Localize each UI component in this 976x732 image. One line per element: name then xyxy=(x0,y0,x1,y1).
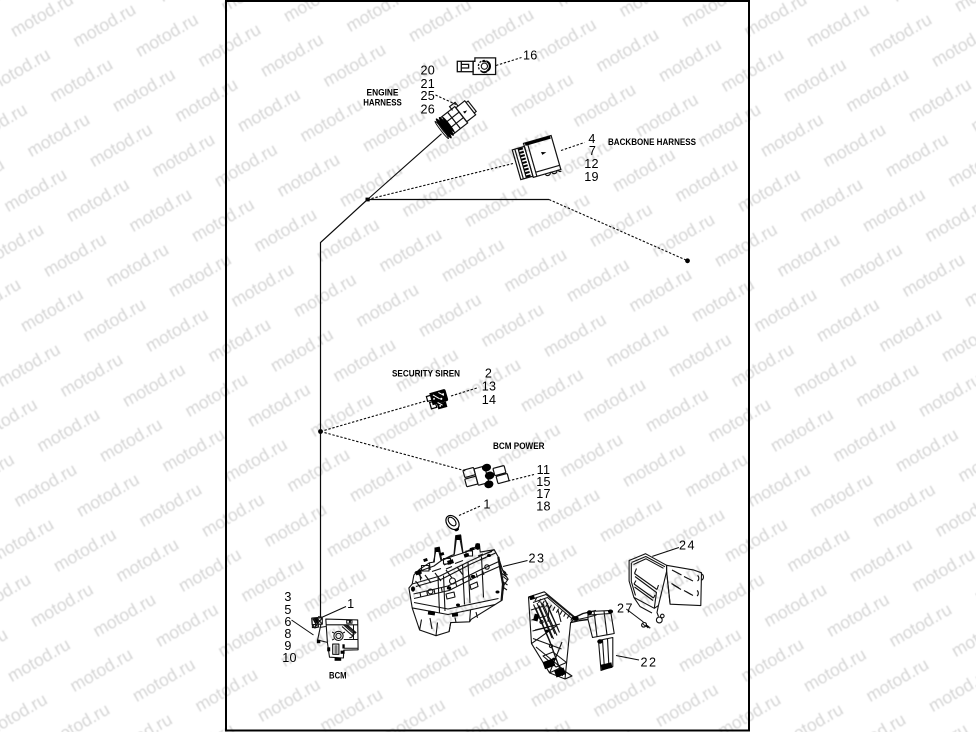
svg-text:motod.ru: motod.ru xyxy=(431,409,501,461)
svg-text:27: 27 xyxy=(617,602,634,616)
svg-text:motod.ru: motod.ru xyxy=(290,269,360,321)
svg-text:motod.ru: motod.ru xyxy=(109,64,179,116)
svg-text:motod.ru: motod.ru xyxy=(504,714,574,732)
svg-text:motod.ru: motod.ru xyxy=(342,0,412,36)
svg-text:motod.ru: motod.ru xyxy=(379,694,449,732)
svg-text:22: 22 xyxy=(640,656,657,670)
svg-text:motod.ru: motod.ru xyxy=(155,0,225,6)
svg-text:motod.ru: motod.ru xyxy=(329,334,399,386)
svg-text:motod.ru: motod.ru xyxy=(165,249,235,301)
svg-text:motod.ru: motod.ru xyxy=(63,174,133,226)
svg-text:motod.ru: motod.ru xyxy=(882,129,952,181)
svg-text:motod.ru: motod.ru xyxy=(727,339,797,391)
svg-text:motod.ru: motod.ru xyxy=(0,514,57,566)
svg-text:motod.ru: motod.ru xyxy=(73,469,143,521)
svg-text:motod.ru: motod.ru xyxy=(829,414,899,466)
svg-text:motod.ru: motod.ru xyxy=(596,494,666,546)
svg-text:motod.ru: motod.ru xyxy=(359,104,429,156)
svg-text:motod.ru: motod.ru xyxy=(517,364,587,416)
svg-text:motod.ru: motod.ru xyxy=(125,184,195,236)
svg-text:motod.ru: motod.ru xyxy=(921,194,976,246)
svg-text:16: 16 xyxy=(523,49,538,63)
svg-text:motod.ru: motod.ru xyxy=(148,129,218,181)
svg-text:motod.ru: motod.ru xyxy=(198,489,268,541)
svg-text:motod.ru: motod.ru xyxy=(823,589,893,641)
svg-text:motod.ru: motod.ru xyxy=(892,424,962,476)
svg-text:motod.ru: motod.ru xyxy=(234,84,304,136)
svg-text:motod.ru: motod.ru xyxy=(352,279,422,331)
svg-text:motod.ru: motod.ru xyxy=(842,64,912,116)
svg-text:motod.ru: motod.ru xyxy=(112,534,182,586)
svg-text:motod.ru: motod.ru xyxy=(244,379,314,431)
svg-text:motod.ru: motod.ru xyxy=(800,644,870,696)
svg-text:motod.ru: motod.ru xyxy=(908,544,976,596)
svg-text:motod.ru: motod.ru xyxy=(7,0,77,41)
svg-text:motod.ru: motod.ru xyxy=(336,159,406,211)
svg-text:motod.ru: motod.ru xyxy=(885,599,955,651)
svg-text:motod.ru: motod.ru xyxy=(773,229,843,281)
svg-text:motod.ru: motod.ru xyxy=(915,369,976,421)
svg-text:motod.ru: motod.ru xyxy=(119,359,189,411)
svg-text:motod.ru: motod.ru xyxy=(46,54,116,106)
svg-text:motod.ru: motod.ru xyxy=(905,74,975,126)
svg-text:motod.ru: motod.ru xyxy=(300,564,370,616)
svg-text:motod.ru: motod.ru xyxy=(556,429,626,481)
svg-text:motod.ru: motod.ru xyxy=(89,589,159,641)
svg-text:7: 7 xyxy=(589,144,596,158)
svg-text:motod.ru: motod.ru xyxy=(740,0,810,41)
svg-text:motod.ru: motod.ru xyxy=(898,249,968,301)
svg-text:motod.ru: motod.ru xyxy=(846,534,916,586)
svg-text:motod.ru: motod.ru xyxy=(227,259,297,311)
svg-text:motod.ru: motod.ru xyxy=(839,709,909,732)
svg-text:motod.ru: motod.ru xyxy=(0,164,70,216)
svg-text:motod.ru: motod.ru xyxy=(721,514,791,566)
svg-text:motod.ru: motod.ru xyxy=(96,414,166,466)
svg-text:motod.ru: motod.ru xyxy=(102,239,172,291)
svg-text:motod.ru: motod.ru xyxy=(152,599,222,651)
svg-text:motod.ru: motod.ru xyxy=(615,0,685,21)
svg-text:motod.ru: motod.ru xyxy=(694,99,764,151)
svg-text:HARNESS: HARNESS xyxy=(363,97,402,108)
svg-text:10: 10 xyxy=(282,651,297,665)
svg-text:motod.ru: motod.ru xyxy=(369,399,439,451)
svg-text:14: 14 xyxy=(482,393,497,407)
svg-text:motod.ru: motod.ru xyxy=(33,404,103,456)
svg-text:motod.ru: motod.ru xyxy=(619,439,689,491)
svg-text:motod.ru: motod.ru xyxy=(441,704,511,732)
svg-text:motod.ru: motod.ru xyxy=(375,224,445,276)
svg-text:motod.ru: motod.ru xyxy=(323,509,393,561)
svg-text:motod.ru: motod.ru xyxy=(563,254,633,306)
svg-text:motod.ru: motod.ru xyxy=(204,314,274,366)
svg-text:motod.ru: motod.ru xyxy=(675,624,745,676)
svg-text:motod.ru: motod.ru xyxy=(477,299,547,351)
svg-text:motod.ru: motod.ru xyxy=(836,239,906,291)
svg-text:motod.ru: motod.ru xyxy=(194,19,264,71)
svg-text:motod.ru: motod.ru xyxy=(50,524,120,576)
svg-text:motod.ru: motod.ru xyxy=(132,9,202,61)
svg-text:motod.ru: motod.ru xyxy=(665,329,735,381)
svg-text:motod.ru: motod.ru xyxy=(681,449,751,501)
svg-text:motod.ru: motod.ru xyxy=(181,369,251,421)
svg-text:23: 23 xyxy=(528,552,545,566)
svg-text:motod.ru: motod.ru xyxy=(214,609,284,661)
svg-text:motod.ru: motod.ru xyxy=(385,519,455,571)
svg-text:motod.ru: motod.ru xyxy=(806,469,876,521)
svg-text:motod.ru: motod.ru xyxy=(862,654,932,706)
svg-text:18: 18 xyxy=(536,499,551,513)
svg-text:motod.ru: motod.ru xyxy=(66,644,136,696)
svg-text:motod.ru: motod.ru xyxy=(931,489,976,541)
svg-text:motod.ru: motod.ru xyxy=(267,324,337,376)
svg-text:20: 20 xyxy=(421,64,436,78)
svg-text:motod.ru: motod.ru xyxy=(129,654,199,706)
svg-text:motod.ru: motod.ru xyxy=(296,94,366,146)
svg-text:motod.ru: motod.ru xyxy=(217,0,287,16)
svg-text:motod.ru: motod.ru xyxy=(257,29,327,81)
svg-text:motod.ru: motod.ru xyxy=(283,444,353,496)
svg-text:motod.ru: motod.ru xyxy=(609,144,679,196)
svg-text:motod.ru: motod.ru xyxy=(171,74,241,126)
svg-text:motod.ru: motod.ru xyxy=(4,634,74,686)
svg-text:motod.ru: motod.ru xyxy=(188,194,258,246)
svg-text:motod.ru: motod.ru xyxy=(40,229,110,281)
svg-text:motod.ru: motod.ru xyxy=(402,639,472,691)
svg-text:motod.ru: motod.ru xyxy=(925,664,976,716)
svg-text:motod.ru: motod.ru xyxy=(579,374,649,426)
svg-text:motod.ru: motod.ru xyxy=(306,389,376,441)
svg-text:motod.ru: motod.ru xyxy=(790,349,860,401)
svg-text:motod.ru: motod.ru xyxy=(744,459,814,511)
svg-text:motod.ru: motod.ru xyxy=(777,699,847,732)
svg-text:motod.ru: motod.ru xyxy=(678,0,748,31)
svg-text:24: 24 xyxy=(679,539,696,553)
svg-text:motod.ru: motod.ru xyxy=(79,294,149,346)
svg-text:25: 25 xyxy=(421,89,436,103)
svg-text:motod.ru: motod.ru xyxy=(750,284,820,336)
svg-text:motod.ru: motod.ru xyxy=(875,304,945,356)
svg-text:13: 13 xyxy=(482,380,497,394)
svg-text:motod.ru: motod.ru xyxy=(398,169,468,221)
svg-text:motod.ru: motod.ru xyxy=(10,459,80,511)
svg-text:motod.ru: motod.ru xyxy=(421,114,491,166)
svg-text:motod.ru: motod.ru xyxy=(43,699,113,732)
svg-text:1: 1 xyxy=(347,597,354,611)
svg-text:motod.ru: motod.ru xyxy=(273,149,343,201)
svg-text:motod.ru: motod.ru xyxy=(592,24,662,76)
svg-text:motod.ru: motod.ru xyxy=(767,404,837,456)
svg-text:motod.ru: motod.ru xyxy=(69,0,139,51)
svg-text:motod.ru: motod.ru xyxy=(734,164,804,216)
svg-text:motod.ru: motod.ru xyxy=(796,174,866,226)
svg-text:motod.ru: motod.ru xyxy=(642,384,712,436)
svg-text:motod.ru: motod.ru xyxy=(158,424,228,476)
svg-text:motod.ru: motod.ru xyxy=(438,234,508,286)
svg-text:motod.ru: motod.ru xyxy=(540,309,610,361)
svg-text:motod.ru: motod.ru xyxy=(803,0,873,51)
svg-text:motod.ru: motod.ru xyxy=(86,119,156,171)
svg-text:motod.ru: motod.ru xyxy=(260,499,330,551)
svg-text:motod.ru: motod.ru xyxy=(757,109,827,161)
svg-text:motod.ru: motod.ru xyxy=(0,689,51,732)
svg-text:motod.ru: motod.ru xyxy=(211,139,281,191)
svg-text:motod.ru: motod.ru xyxy=(783,524,853,576)
svg-text:motod.ru: motod.ru xyxy=(859,184,929,236)
svg-text:motod.ru: motod.ru xyxy=(632,89,702,141)
svg-text:motod.ru: motod.ru xyxy=(530,14,600,66)
svg-text:motod.ru: motod.ru xyxy=(346,454,416,506)
svg-text:motod.ru: motod.ru xyxy=(780,54,850,106)
svg-text:motod.ru: motod.ru xyxy=(0,339,64,391)
svg-text:motod.ru: motod.ru xyxy=(280,0,350,26)
svg-text:1: 1 xyxy=(483,498,490,512)
svg-text:motod.ru: motod.ru xyxy=(652,679,722,731)
svg-text:motod.ru: motod.ru xyxy=(546,134,616,186)
svg-text:motod.ru: motod.ru xyxy=(869,479,939,531)
svg-text:motod.ru: motod.ru xyxy=(56,349,126,401)
svg-text:motod.ru: motod.ru xyxy=(17,284,87,336)
svg-text:motod.ru: motod.ru xyxy=(425,584,495,636)
svg-text:motod.ru: motod.ru xyxy=(717,44,787,96)
svg-text:motod.ru: motod.ru xyxy=(602,319,672,371)
svg-text:motod.ru: motod.ru xyxy=(928,19,976,71)
svg-text:motod.ru: motod.ru xyxy=(316,684,386,732)
svg-text:motod.ru: motod.ru xyxy=(527,659,597,711)
svg-text:motod.ru: motod.ru xyxy=(698,569,768,621)
svg-text:motod.ru: motod.ru xyxy=(175,544,245,596)
svg-text:BCM: BCM xyxy=(329,671,347,682)
svg-text:motod.ru: motod.ru xyxy=(711,219,781,271)
svg-text:motod.ru: motod.ru xyxy=(464,649,534,701)
svg-text:motod.ru: motod.ru xyxy=(865,9,935,61)
svg-text:motod.ru: motod.ru xyxy=(135,479,205,531)
svg-text:motod.ru: motod.ru xyxy=(507,69,577,121)
svg-text:motod.ru: motod.ru xyxy=(737,634,807,686)
svg-text:motod.ru: motod.ru xyxy=(27,579,97,631)
svg-text:motod.ru: motod.ru xyxy=(625,264,695,316)
svg-text:19: 19 xyxy=(584,170,599,184)
svg-text:motod.ru: motod.ru xyxy=(523,189,593,241)
svg-text:BCM POWER: BCM POWER xyxy=(493,441,545,452)
svg-text:motod.ru: motod.ru xyxy=(813,294,883,346)
svg-text:motod.ru: motod.ru xyxy=(589,669,659,721)
svg-text:motod.ru: motod.ru xyxy=(339,629,409,681)
svg-text:SECURITY SIREN: SECURITY SIREN xyxy=(392,369,460,380)
svg-text:motod.ru: motod.ru xyxy=(254,674,324,726)
svg-text:motod.ru: motod.ru xyxy=(671,154,741,206)
svg-text:motod.ru: motod.ru xyxy=(569,79,639,131)
svg-text:2: 2 xyxy=(485,367,492,381)
svg-text:BACKBONE HARNESS: BACKBONE HARNESS xyxy=(608,137,696,148)
svg-text:motod.ru: motod.ru xyxy=(415,289,485,341)
svg-text:motod.ru: motod.ru xyxy=(902,719,972,732)
svg-text:motod.ru: motod.ru xyxy=(573,549,643,601)
svg-text:motod.ru: motod.ru xyxy=(237,554,307,606)
svg-text:motod.ru: motod.ru xyxy=(888,0,958,6)
svg-text:motod.ru: motod.ru xyxy=(648,209,718,261)
svg-text:motod.ru: motod.ru xyxy=(319,39,389,91)
svg-text:motod.ru: motod.ru xyxy=(951,0,976,16)
svg-text:motod.ru: motod.ru xyxy=(23,109,93,161)
svg-text:motod.ru: motod.ru xyxy=(655,34,725,86)
svg-text:motod.ru: motod.ru xyxy=(461,179,531,231)
svg-text:12: 12 xyxy=(584,157,599,171)
svg-text:motod.ru: motod.ru xyxy=(408,464,478,516)
svg-text:motod.ru: motod.ru xyxy=(819,119,889,171)
svg-text:motod.ru: motod.ru xyxy=(142,304,212,356)
svg-text:motod.ru: motod.ru xyxy=(106,709,176,732)
svg-text:motod.ru: motod.ru xyxy=(405,0,475,46)
svg-text:motod.ru: motod.ru xyxy=(221,434,291,486)
svg-text:motod.ru: motod.ru xyxy=(586,199,656,251)
svg-text:26: 26 xyxy=(421,102,436,116)
svg-text:motod.ru: motod.ru xyxy=(250,204,320,256)
svg-text:motod.ru: motod.ru xyxy=(704,394,774,446)
svg-text:motod.ru: motod.ru xyxy=(760,579,830,631)
svg-text:motod.ru: motod.ru xyxy=(688,274,758,326)
svg-text:motod.ru: motod.ru xyxy=(500,244,570,296)
svg-text:motod.ru: motod.ru xyxy=(852,359,922,411)
